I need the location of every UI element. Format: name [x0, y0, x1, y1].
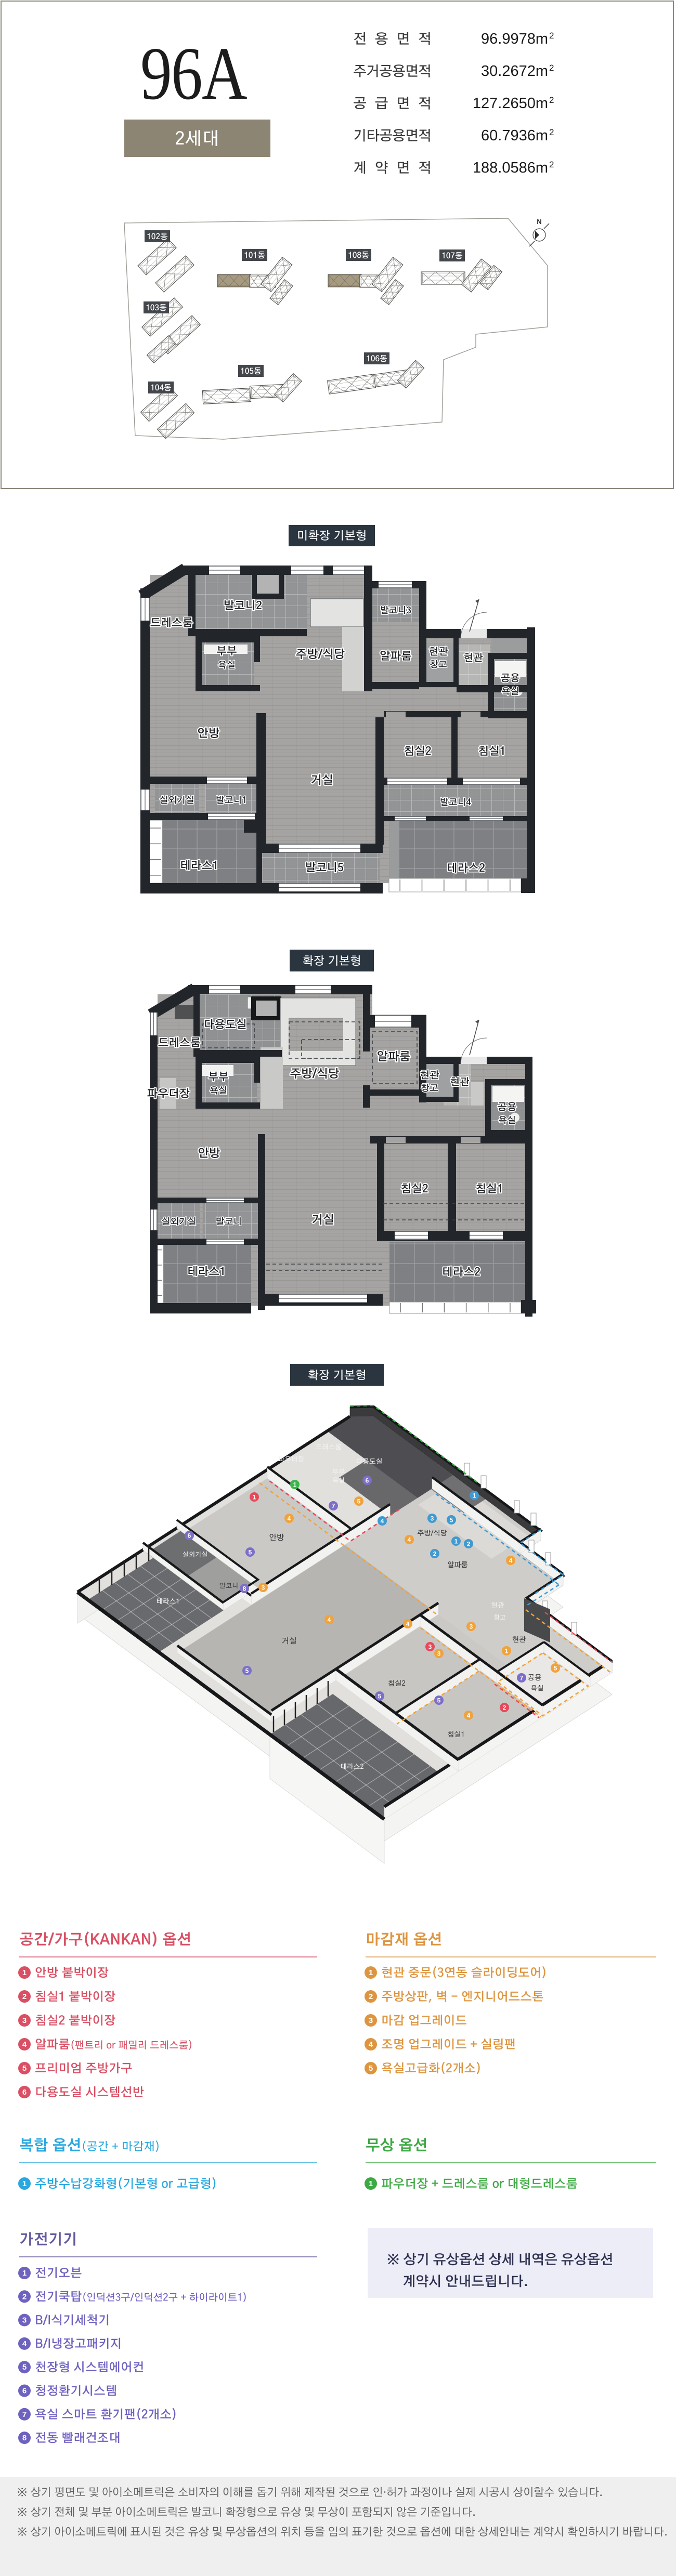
svg-text:8: 8 [22, 2434, 27, 2442]
svg-text:3: 3 [437, 1650, 441, 1658]
svg-text:4: 4 [328, 1616, 331, 1624]
svg-text:5: 5 [450, 1517, 453, 1524]
svg-text:96A: 96A [140, 32, 247, 115]
svg-text:5: 5 [369, 2064, 373, 2073]
svg-text:1: 1 [454, 1538, 458, 1545]
svg-text:7: 7 [332, 1503, 335, 1510]
svg-text:4: 4 [381, 1518, 384, 1525]
svg-text:5: 5 [437, 1697, 441, 1704]
svg-text:2: 2 [549, 95, 554, 105]
svg-text:3: 3 [470, 1623, 473, 1631]
svg-text:5: 5 [249, 1549, 252, 1556]
svg-text:2: 2 [433, 1550, 437, 1558]
svg-text:3: 3 [431, 1515, 434, 1522]
svg-text:2: 2 [549, 127, 554, 137]
svg-text:4: 4 [509, 1557, 513, 1565]
svg-text:5: 5 [378, 1693, 382, 1700]
svg-text:6: 6 [188, 1532, 191, 1540]
svg-text:2: 2 [22, 2292, 27, 2301]
svg-text:2: 2 [549, 31, 554, 41]
svg-text:3: 3 [22, 2016, 27, 2025]
svg-text:127.2650m: 127.2650m [473, 95, 548, 112]
svg-text:1: 1 [253, 1494, 256, 1501]
svg-text:5: 5 [245, 1667, 249, 1675]
svg-text:1: 1 [22, 2269, 27, 2278]
svg-text:4: 4 [406, 1621, 410, 1628]
svg-text:1: 1 [473, 1492, 476, 1500]
svg-text:2: 2 [549, 160, 554, 169]
svg-text:5: 5 [22, 2363, 27, 2372]
svg-text:4: 4 [467, 1712, 471, 1719]
svg-text:7: 7 [520, 1675, 524, 1682]
svg-text:2: 2 [549, 63, 554, 73]
svg-text:2: 2 [503, 1704, 506, 1712]
svg-text:4: 4 [22, 2340, 27, 2348]
svg-text:6: 6 [366, 1477, 369, 1484]
svg-text:1: 1 [293, 1481, 297, 1489]
svg-text:N: N [537, 218, 541, 226]
svg-text:30.2672m: 30.2672m [481, 63, 548, 80]
svg-text:2: 2 [369, 1992, 373, 2001]
svg-text:8: 8 [243, 1585, 246, 1593]
svg-text:4: 4 [288, 1515, 291, 1522]
svg-text:1: 1 [22, 2179, 27, 2188]
svg-text:60.7936m: 60.7936m [481, 127, 548, 144]
svg-text:1: 1 [22, 1968, 27, 1977]
svg-text:4: 4 [22, 2040, 27, 2049]
svg-text:6: 6 [22, 2387, 27, 2396]
svg-text:7: 7 [22, 2410, 27, 2419]
svg-text:4: 4 [408, 1536, 411, 1544]
svg-text:3: 3 [262, 1584, 265, 1592]
svg-text:1: 1 [369, 1968, 373, 1977]
svg-text:3: 3 [369, 2016, 373, 2025]
svg-text:188.0586m: 188.0586m [473, 160, 548, 176]
svg-text:6: 6 [22, 2088, 27, 2097]
svg-text:1: 1 [369, 2179, 373, 2188]
svg-text:1: 1 [505, 1648, 509, 1655]
svg-text:2: 2 [467, 1541, 471, 1548]
svg-text:5: 5 [554, 1665, 557, 1672]
svg-text:2: 2 [22, 1992, 27, 2001]
svg-text:5: 5 [357, 1498, 361, 1505]
svg-text:96.9978m: 96.9978m [481, 31, 548, 47]
svg-text:4: 4 [369, 2040, 373, 2049]
svg-text:3: 3 [22, 2316, 27, 2325]
svg-text:3: 3 [428, 1644, 432, 1651]
svg-text:5: 5 [22, 2064, 27, 2073]
